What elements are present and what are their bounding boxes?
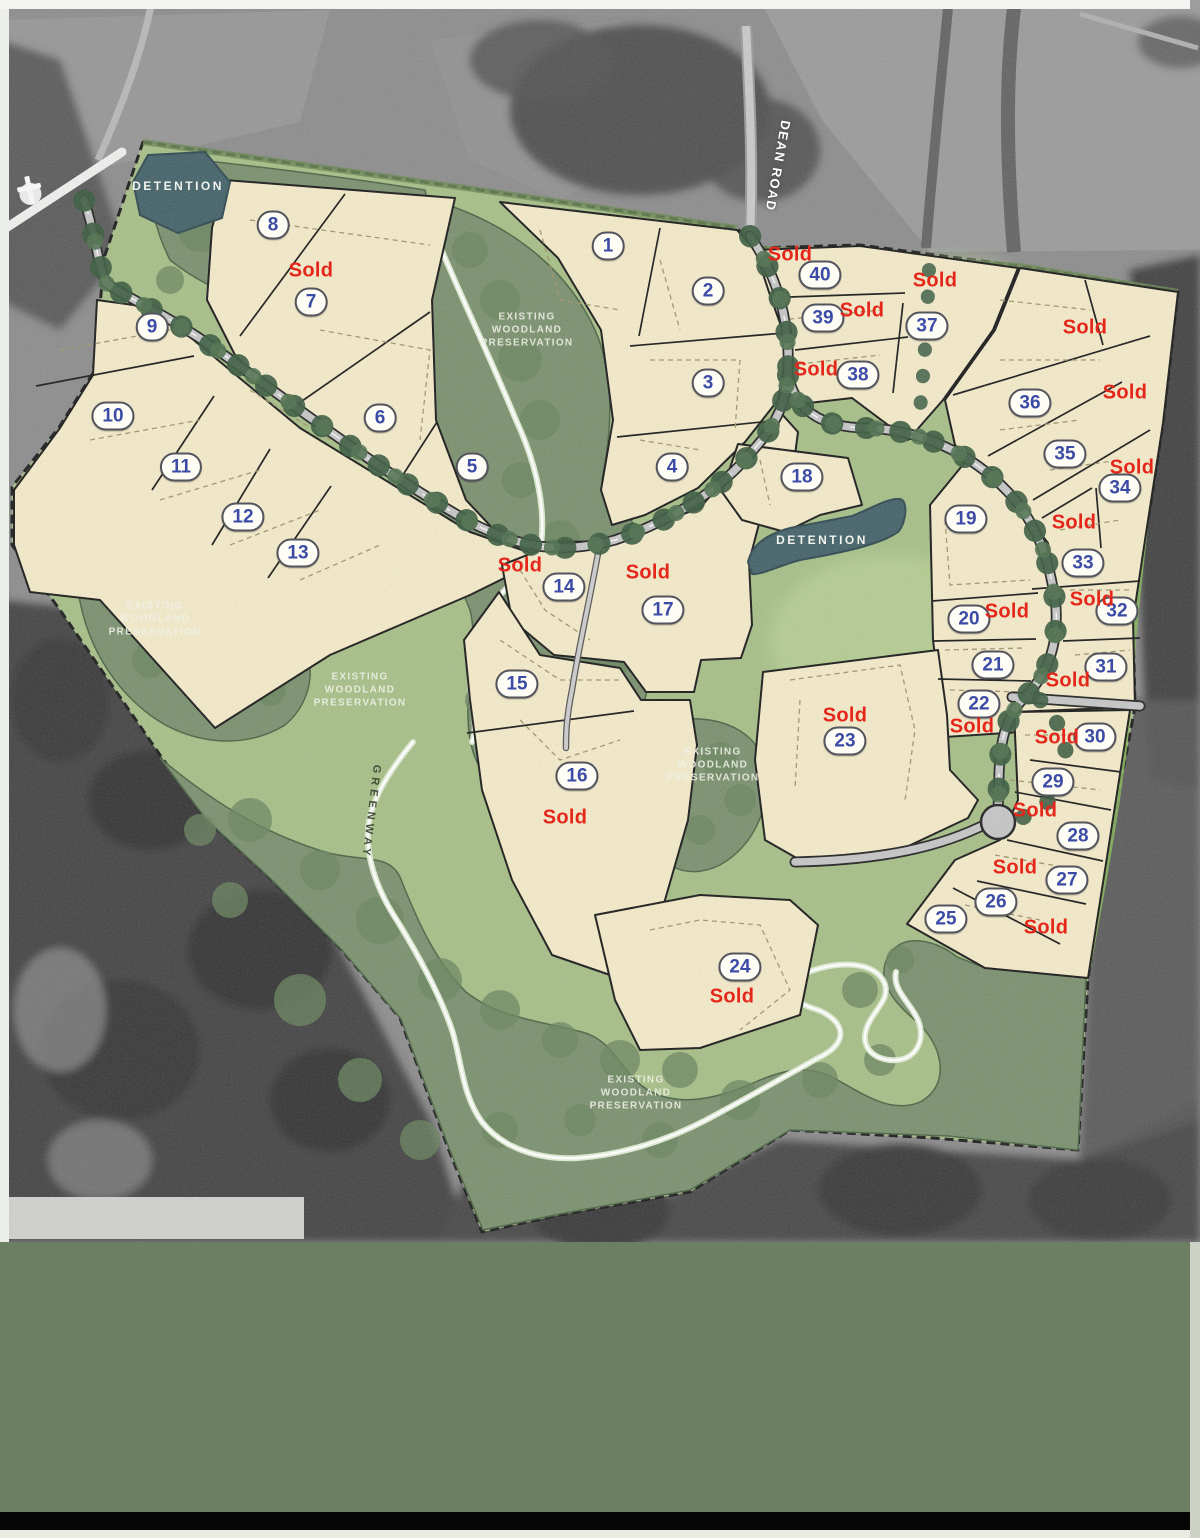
lot-label-18: 18 <box>780 463 823 492</box>
lot-label-9: 9 <box>136 313 169 342</box>
lot-label-35: 35 <box>1043 440 1086 469</box>
lot-label-14: 14 <box>542 573 585 602</box>
road-label-greenway: GREENWAY <box>359 764 383 860</box>
sold-label: Sold <box>1103 382 1148 405</box>
detention-label: DETENTION <box>132 179 224 193</box>
lot-label-24: 24 <box>718 953 761 982</box>
site-plan-map: Residential development lot site plan <box>0 0 1200 1538</box>
lot-label-31: 31 <box>1084 653 1127 682</box>
preserve-label: EXISTINGWOODLANDPRESERVATION <box>314 671 407 710</box>
sold-label: Sold <box>985 601 1030 624</box>
sold-label: Sold <box>1046 670 1091 693</box>
lot-label-38: 38 <box>836 361 879 390</box>
lot-label-6: 6 <box>364 404 397 433</box>
lot-label-23: 23 <box>823 727 866 756</box>
sold-label: Sold <box>1110 457 1155 480</box>
lot-label-10: 10 <box>91 402 134 431</box>
lot-label-7: 7 <box>295 288 328 317</box>
sold-label: Sold <box>710 986 755 1009</box>
sold-label: Sold <box>1070 589 1115 612</box>
road-label-dean-road: DEAN ROAD <box>763 119 794 212</box>
lot-label-2: 2 <box>692 277 725 306</box>
preserve-label: EXISTINGWOODLANDPRESERVATION <box>667 746 760 785</box>
lot-label-5: 5 <box>456 453 489 482</box>
sold-label: Sold <box>543 807 588 830</box>
lot-label-17: 17 <box>641 596 684 625</box>
sold-label: Sold <box>993 857 1038 880</box>
label-layer: 1234567891011121314151617181920212223242… <box>0 0 1200 1538</box>
lot-label-30: 30 <box>1073 723 1116 752</box>
sold-label: Sold <box>626 562 671 585</box>
sold-label: Sold <box>823 705 868 728</box>
lot-label-1: 1 <box>592 232 625 261</box>
sold-label: Sold <box>1052 512 1097 535</box>
lot-label-11: 11 <box>160 453 202 482</box>
lot-label-8: 8 <box>257 211 290 240</box>
sold-label: Sold <box>913 270 958 293</box>
sold-label: Sold <box>498 555 543 578</box>
lot-label-29: 29 <box>1031 768 1074 797</box>
sold-label: Sold <box>768 244 813 267</box>
sold-label: Sold <box>1013 800 1058 823</box>
preserve-label: EXISTINGWOODLANDPRESERVATION <box>481 311 574 350</box>
preserve-label: EXISTINGWOODLANDPRESERVATION <box>590 1074 683 1113</box>
sold-label: Sold <box>1035 727 1080 750</box>
lot-label-26: 26 <box>974 888 1017 917</box>
sold-label: Sold <box>1063 317 1108 340</box>
lot-label-3: 3 <box>692 369 725 398</box>
lot-label-12: 12 <box>221 503 264 532</box>
lot-label-25: 25 <box>924 905 967 934</box>
lot-label-21: 21 <box>971 651 1014 680</box>
sold-label: Sold <box>1024 917 1069 940</box>
detention-label: DETENTION <box>776 533 868 547</box>
sold-label: Sold <box>794 359 839 382</box>
lot-label-19: 19 <box>944 505 987 534</box>
lot-label-36: 36 <box>1008 389 1051 418</box>
lot-label-28: 28 <box>1056 822 1099 851</box>
lot-label-22: 22 <box>957 690 1000 719</box>
lot-label-16: 16 <box>555 762 598 791</box>
lot-label-4: 4 <box>656 453 689 482</box>
preserve-label: EXISTINGWOODLANDPRESERVATION <box>109 600 202 639</box>
sold-label: Sold <box>840 300 885 323</box>
sold-label: Sold <box>289 260 334 283</box>
lot-label-27: 27 <box>1045 866 1088 895</box>
sold-label: Sold <box>950 716 995 739</box>
lot-label-15: 15 <box>495 670 538 699</box>
lot-label-37: 37 <box>905 312 948 341</box>
lot-label-39: 39 <box>801 304 844 333</box>
lot-label-33: 33 <box>1061 549 1104 578</box>
lot-label-13: 13 <box>276 539 319 568</box>
